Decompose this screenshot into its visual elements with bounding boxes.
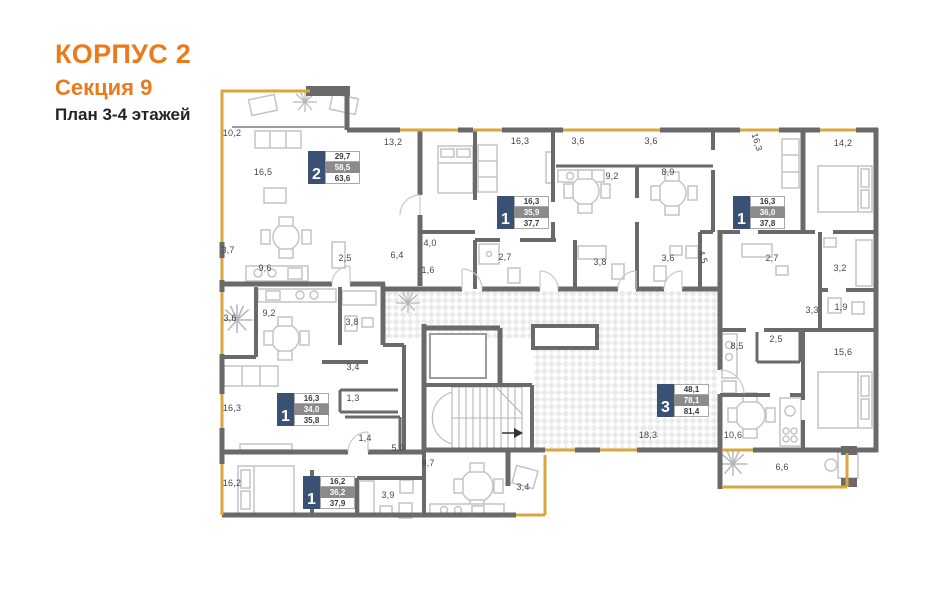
room-area-label: 3,6 bbox=[571, 136, 584, 146]
plant-icon bbox=[719, 450, 748, 476]
apartment-living-area: 16,3 bbox=[750, 196, 785, 207]
room-area-label: 9,6 bbox=[258, 263, 271, 273]
bed-icon bbox=[238, 466, 294, 514]
tv-stand-icon bbox=[240, 444, 292, 450]
apartment-badge: 3 48,1 78,1 81,4 bbox=[657, 384, 709, 417]
apartment-rooms-count: 3 bbox=[657, 384, 674, 417]
floors-subtitle: План 3-4 этажей bbox=[55, 105, 191, 125]
dining-table-icon bbox=[454, 463, 503, 509]
room-area-label: 13,2 bbox=[384, 137, 402, 147]
room-area-label: 3,8 bbox=[593, 257, 606, 267]
apartment-area-excl-balcony: 58,5 bbox=[325, 162, 360, 173]
sofa-icon bbox=[224, 366, 278, 386]
room-area-label: 1,4 bbox=[358, 433, 371, 443]
bathtub-icon bbox=[342, 291, 376, 305]
room-area-label: 8,5 bbox=[730, 341, 743, 351]
room-area-label: 2,5 bbox=[338, 253, 351, 263]
room-area-label: 16,5 bbox=[254, 167, 272, 177]
apartment-living-area: 16,3 bbox=[294, 393, 329, 404]
bed-icon bbox=[818, 372, 872, 428]
sink-icon bbox=[776, 266, 788, 275]
room-area-label: 3,6 bbox=[661, 253, 674, 263]
apartment-badge: 1 16,2 36,2 37,9 bbox=[303, 476, 355, 509]
sink-icon bbox=[362, 318, 373, 327]
sofa-icon bbox=[478, 145, 497, 192]
room-area-label: 1,9 bbox=[834, 302, 847, 312]
room-area-label: 3,6 bbox=[644, 136, 657, 146]
toilet-icon bbox=[654, 266, 666, 281]
apartment-badge: 1 16,3 36,0 37,8 bbox=[733, 196, 785, 229]
apartment-rooms-count: 1 bbox=[303, 476, 320, 509]
apartment-total-area: 81,4 bbox=[674, 406, 709, 417]
room-area-label: 8,9 bbox=[661, 167, 674, 177]
apartment-rooms-count: 2 bbox=[308, 151, 325, 184]
lounge-chair-icon bbox=[330, 93, 359, 114]
apartment-rooms-count: 1 bbox=[497, 196, 514, 229]
apartment-badge: 1 16,3 35,9 37,7 bbox=[497, 196, 549, 229]
sofa-icon bbox=[782, 139, 799, 188]
room-area-label: 3,4 bbox=[346, 362, 359, 372]
room-area-label: 6,4 bbox=[390, 250, 403, 260]
plan-title-block: КОРПУС 2 Секция 9 План 3-4 этажей bbox=[55, 38, 191, 125]
floor-plan-page: КОРПУС 2 Секция 9 План 3-4 этажей 10,216… bbox=[0, 0, 941, 600]
dining-table-icon bbox=[261, 217, 311, 258]
sink-icon bbox=[824, 238, 836, 247]
apartment-area-excl-balcony: 34,0 bbox=[294, 404, 329, 415]
room-area-label: 1,3 bbox=[346, 393, 359, 403]
room-area-label: 3,4 bbox=[516, 482, 529, 492]
room-area-label: 10,6 bbox=[724, 430, 742, 440]
apartment-rooms-count: 1 bbox=[277, 393, 294, 426]
section-title: Секция 9 bbox=[55, 75, 191, 101]
room-area-label: 1,6 bbox=[421, 265, 434, 275]
stairs-icon bbox=[432, 387, 523, 449]
room-area-label: 2,7 bbox=[498, 252, 511, 262]
apartment-badge: 1 16,3 34,0 35,8 bbox=[277, 393, 329, 426]
toilet-icon bbox=[508, 268, 520, 283]
room-area-label: 10,2 bbox=[223, 128, 241, 138]
apartment-total-area: 37,9 bbox=[320, 498, 355, 509]
apartment-area-excl-balcony: 36,0 bbox=[750, 207, 785, 218]
apartment-area-excl-balcony: 35,9 bbox=[514, 207, 549, 218]
dining-table-icon bbox=[264, 317, 309, 360]
apartment-total-area: 35,8 bbox=[294, 415, 329, 426]
kitchen-counter-icon bbox=[258, 289, 336, 302]
room-area-label: 6,6 bbox=[775, 462, 788, 472]
room-area-label: 3,9 bbox=[381, 490, 394, 500]
apartment-living-area: 16,2 bbox=[320, 476, 355, 487]
room-area-label: 3,6 bbox=[223, 313, 236, 323]
building-title: КОРПУС 2 bbox=[55, 38, 191, 70]
room-area-label: 3,2 bbox=[833, 263, 846, 273]
kitchen-counter-icon bbox=[780, 398, 801, 446]
room-area-label: 3,8 bbox=[345, 317, 358, 327]
apartment-living-area: 29,7 bbox=[325, 151, 360, 162]
washing-machine-icon bbox=[400, 480, 413, 493]
apartment-rooms-count: 1 bbox=[733, 196, 750, 229]
bathtub-icon bbox=[856, 240, 872, 286]
apartment-badge: 2 29,7 58,5 63,6 bbox=[308, 151, 360, 184]
apartment-total-area: 63,6 bbox=[325, 173, 360, 184]
lounge-chair-icon bbox=[249, 94, 278, 115]
room-area-label: 18,3 bbox=[639, 430, 657, 440]
room-area-label: 9,2 bbox=[605, 171, 618, 181]
desk-icon bbox=[825, 452, 858, 478]
room-area-label: 15,6 bbox=[834, 347, 852, 357]
shower-icon bbox=[479, 244, 499, 264]
room-area-label: 9,7 bbox=[421, 458, 434, 468]
room-area-label: 14,2 bbox=[834, 138, 852, 148]
bed-icon bbox=[818, 166, 872, 212]
bed-icon bbox=[438, 146, 473, 193]
apartment-area-excl-balcony: 36,2 bbox=[320, 487, 355, 498]
apartment-total-area: 37,8 bbox=[750, 218, 785, 229]
room-area-label: 9,2 bbox=[262, 308, 275, 318]
room-area-label: 16,3 bbox=[511, 136, 529, 146]
armchair-icon bbox=[264, 188, 286, 203]
room-area-label: 3,3 bbox=[805, 305, 818, 315]
apartment-living-area: 48,1 bbox=[674, 384, 709, 395]
apartment-total-area: 37,7 bbox=[514, 218, 549, 229]
room-area-label: 5,0 bbox=[391, 443, 404, 453]
room-area-label: 2,5 bbox=[769, 334, 782, 344]
kitchen-counter-icon bbox=[246, 266, 308, 281]
room-area-label: 3,7 bbox=[221, 245, 234, 255]
apartment-area-excl-balcony: 78,1 bbox=[674, 395, 709, 406]
washing-machine-icon bbox=[852, 302, 864, 314]
room-area-label: 16,3 bbox=[223, 403, 241, 413]
apartment-living-area: 16,3 bbox=[514, 196, 549, 207]
room-area-label: 4,0 bbox=[423, 238, 436, 248]
room-area-label: 16,2 bbox=[223, 478, 241, 488]
bathtub-icon bbox=[359, 481, 374, 515]
room-area-label: 2,7 bbox=[765, 253, 778, 263]
dining-table-icon bbox=[651, 172, 697, 215]
sofa-icon bbox=[255, 131, 301, 148]
